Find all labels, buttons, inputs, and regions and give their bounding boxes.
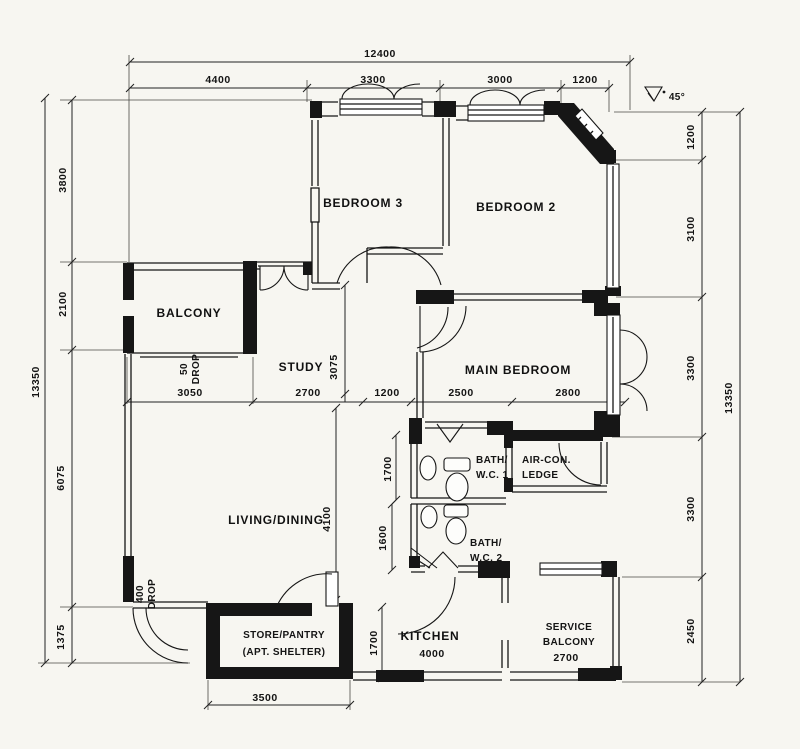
dim-left-1375: 1375 <box>55 624 67 649</box>
bath2-cistern <box>444 505 468 517</box>
bedroom3-window <box>340 99 422 115</box>
bath2-toilet <box>446 518 466 544</box>
room-label-aircon-line1: AIR-CON. <box>522 455 571 466</box>
dim-right-3100: 3100 <box>685 216 697 241</box>
bath1-toilet <box>446 473 468 501</box>
room-label-balcony: BALCONY <box>157 306 222 320</box>
drop-400-value: 400 <box>135 585 146 603</box>
dim-top-4400: 4400 <box>205 74 230 86</box>
dim-left-3800: 3800 <box>57 167 69 192</box>
dim-mid-2800: 2800 <box>555 387 580 399</box>
dim-top-1200: 1200 <box>572 74 597 86</box>
dim-top-3000: 3000 <box>487 74 512 86</box>
bedroom2-window <box>468 105 544 121</box>
room-label-bath1-line2: W.C. 1 <box>476 470 508 481</box>
dim-store-depth: 1700 <box>368 630 380 655</box>
dim-kitchen-width: 4000 <box>419 648 444 660</box>
dim-left-6075: 6075 <box>55 465 67 490</box>
dim-left-overall: 13350 <box>30 366 42 398</box>
dim-bath1-depth: 1700 <box>382 456 394 481</box>
bath2-sink <box>421 506 437 528</box>
room-label-bedroom2: BEDROOM 2 <box>476 200 556 214</box>
dim-mid-2700: 2700 <box>295 387 320 399</box>
room-label-kitchen: KITCHEN <box>401 629 460 643</box>
drop-50-word: DROP <box>191 354 202 385</box>
room-label-store-line2: (APT. SHELTER) <box>243 647 326 658</box>
room-label-bath1-line1: BATH/ <box>476 455 508 466</box>
room-label-service-line2: BALCONY <box>543 637 595 648</box>
room-label-bedroom3: BEDROOM 3 <box>323 196 403 210</box>
dim-bath2-depth: 1600 <box>377 525 389 550</box>
room-label-bath2-line2: W.C. 2 <box>470 553 502 564</box>
room-label-aircon-line2: LEDGE <box>522 470 558 481</box>
dim-mid-3050: 3050 <box>177 387 202 399</box>
drop-400-word: DROP <box>147 579 158 610</box>
room-label-living-dining: LIVING/DINING <box>228 513 324 527</box>
dim-top-3300: 3300 <box>360 74 385 86</box>
room-label-main-bedroom: MAIN BEDROOM <box>465 363 571 377</box>
angle-marker <box>645 87 665 101</box>
floor-plan-svg: 12400 4400 3300 3000 1200 13350 3800 210… <box>0 0 800 749</box>
room-label-service-line1: SERVICE <box>546 622 593 633</box>
dimension-texts: 12400 4400 3300 3000 1200 13350 3800 210… <box>30 48 735 704</box>
floor-plan-scan: 12400 4400 3300 3000 1200 13350 3800 210… <box>0 0 800 749</box>
dim-left-2100: 2100 <box>57 291 69 316</box>
room-label-store-line1: STORE/PANTRY <box>243 630 325 641</box>
annotation-texts: 50 DROP 400 DROP 45° <box>135 92 685 609</box>
dim-top-overall: 12400 <box>364 48 396 60</box>
dim-store-width: 3500 <box>252 692 277 704</box>
bath1-cistern <box>444 458 470 471</box>
dim-right-3300b: 3300 <box>685 496 697 521</box>
dim-right-2450: 2450 <box>685 618 697 643</box>
room-label-study: STUDY <box>279 360 324 374</box>
dim-service-balcony-width: 2700 <box>553 652 578 664</box>
dim-mid-1200: 1200 <box>374 387 399 399</box>
bath-fixtures <box>411 456 470 568</box>
bath1-sink <box>420 456 436 480</box>
dim-right-overall: 13350 <box>723 382 735 414</box>
dim-right-3300a: 3300 <box>685 355 697 380</box>
drop-50-value: 50 <box>179 363 190 375</box>
extension-lines <box>38 55 740 710</box>
dim-mid-2500: 2500 <box>448 387 473 399</box>
angle-label: 45° <box>669 92 685 103</box>
room-label-bath2-line1: BATH/ <box>470 538 502 549</box>
dim-right-1200: 1200 <box>685 124 697 149</box>
dim-study-depth: 3075 <box>328 354 340 379</box>
